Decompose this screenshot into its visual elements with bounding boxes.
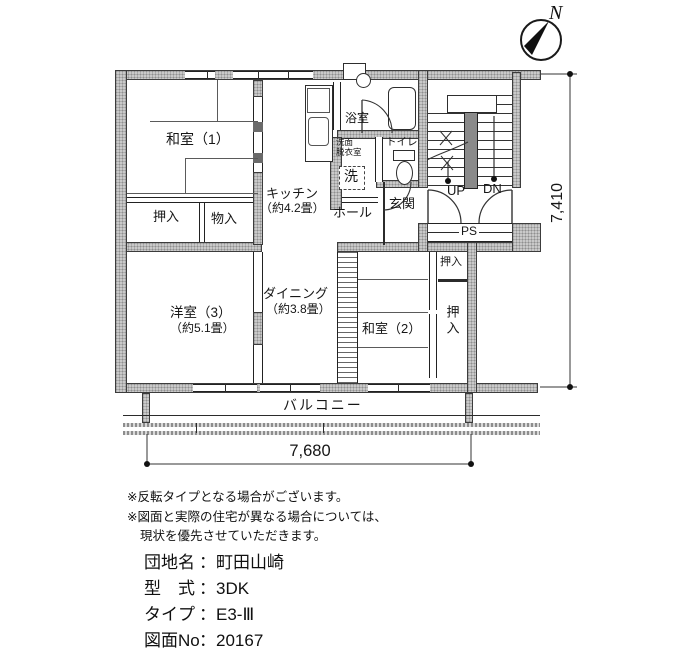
info-value-zumen: 20167 (216, 631, 263, 650)
info-colon: ： (199, 631, 216, 650)
stair-break-curve (427, 142, 468, 160)
dim-dot (468, 461, 474, 467)
room-label-genkan: 玄関 (389, 197, 415, 212)
info-row-type: タイプ：E3-Ⅲ (144, 600, 254, 625)
note-line-3: 現状を優先させていただきます。 (140, 525, 326, 544)
info-label-katashiki: 型 式 (144, 574, 199, 599)
compass-north-label: N (548, 2, 564, 24)
info-colon: ： (199, 605, 216, 624)
room-label-washitsu2: 和室（2） (362, 322, 421, 337)
dim-dot (144, 461, 150, 467)
room-label-dining-size: （約3.8畳） (266, 303, 331, 316)
info-label-type: タイプ (144, 600, 199, 625)
info-value-danchi: 町田山崎 (216, 553, 284, 572)
stair-break-x (440, 131, 453, 170)
info-colon: ： (199, 553, 216, 572)
dimension-horizontal: 7,680 (270, 442, 350, 460)
room-label-dining: ダイニング (263, 287, 328, 302)
info-row-zumen: 図面No：20167 (144, 626, 263, 650)
info-row-danchi: 団地名：町田山崎 (144, 548, 284, 573)
room-label-kitchen: キッチン (266, 187, 318, 202)
room-label-oshiire3: 押入 (444, 305, 459, 337)
label-stairs-up: UP (447, 184, 465, 199)
label-washing-machine: 洗 (344, 169, 358, 185)
compass-circle (521, 20, 561, 60)
room-label-kitchen-size: （約4.2畳） (260, 202, 325, 215)
dimension-vertical: 7,410 (549, 183, 567, 223)
info-label-zumen: 図面No (144, 626, 199, 650)
compass-icon: N (521, 2, 564, 60)
label-ps: PS (459, 225, 479, 238)
note-line-1: ※反転タイプとなる場合がございます。 (127, 486, 348, 505)
plan-overlay: N (0, 0, 700, 650)
room-label-monoire: 物入 (211, 212, 237, 227)
info-row-katashiki: 型 式：3DK (144, 574, 249, 599)
dim-dot (567, 71, 573, 77)
info-colon: ： (199, 579, 216, 598)
room-label-bath: 浴室 (345, 112, 369, 125)
note-line-2: ※図面と実際の住宅が異なる場合については、 (127, 506, 387, 525)
room-label-yoshitsu3: 洋室（3） (170, 305, 232, 320)
info-value-type: E3-Ⅲ (216, 605, 254, 624)
room-label-washitsu1: 和室（1） (166, 132, 230, 148)
room-label-oshiire1: 押入 (153, 210, 179, 225)
room-label-yoshitsu3-size: （約5.1畳） (170, 322, 235, 335)
label-stairs-dn: DN (483, 182, 502, 197)
info-value-katashiki: 3DK (216, 579, 249, 598)
dim-dot (567, 384, 573, 390)
room-label-washroom-2: 脱衣室 (336, 148, 362, 158)
room-label-balcony: バルコニー (283, 398, 363, 414)
room-label-hall: ホール (333, 206, 372, 221)
info-label-danchi: 団地名 (144, 548, 199, 573)
room-label-oshiire2: 押入 (440, 256, 462, 268)
room-label-toilet: トイレ (386, 137, 418, 149)
floor-plan-page: N 和室（1） 押入 物入 キッチン （約4.2畳） 浴室 洗面 脱衣室 洗 ト… (0, 0, 700, 650)
